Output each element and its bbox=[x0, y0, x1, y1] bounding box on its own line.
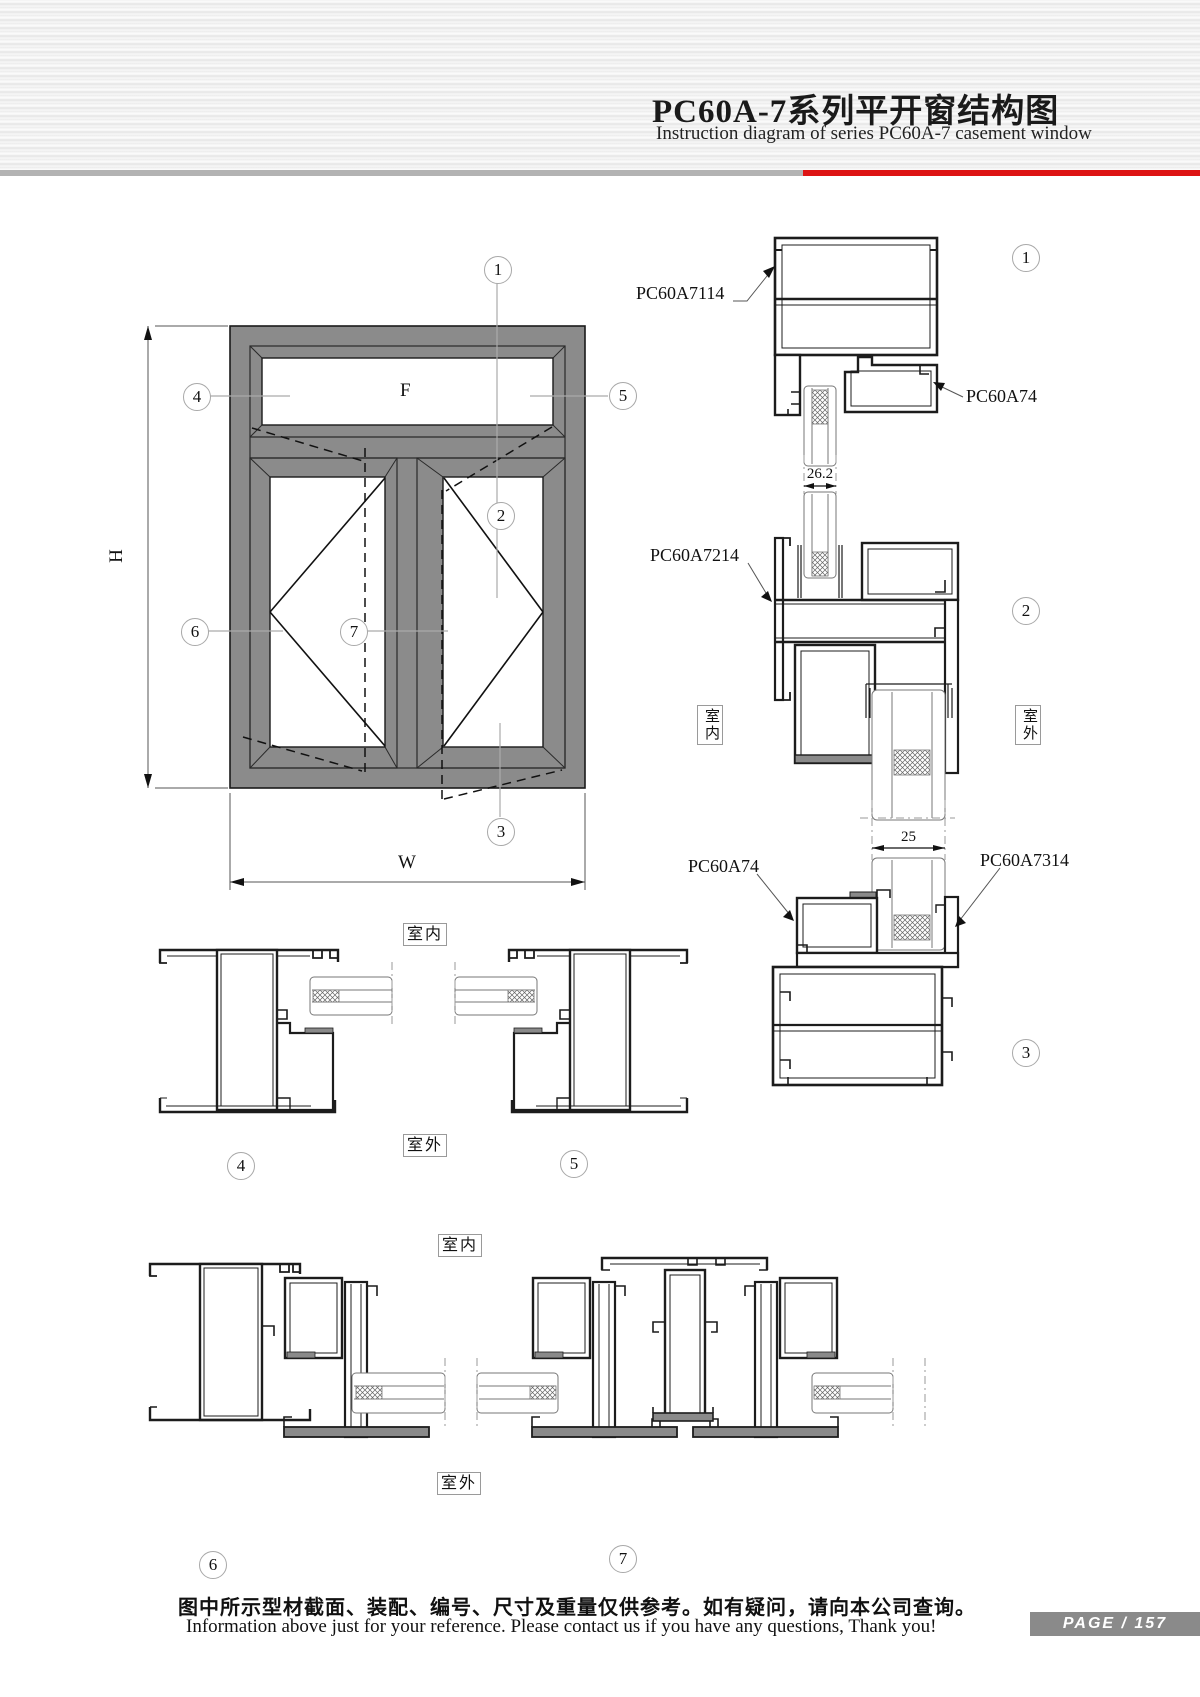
indoor-label-row2: 室内 bbox=[403, 923, 447, 946]
dim-26-2: 26.2 bbox=[804, 466, 836, 483]
elevation-width-label: W bbox=[398, 852, 416, 874]
label-pc60a7114: PC60A7114 bbox=[636, 283, 724, 304]
elevation-view bbox=[144, 283, 608, 890]
elevation-height-label: H bbox=[106, 549, 128, 563]
callout-7-section: 7 bbox=[609, 1545, 637, 1573]
section-7-mullion-left bbox=[445, 1278, 677, 1437]
page-number-badge: PAGE / 157 bbox=[1030, 1612, 1200, 1636]
callout-7-elevation: 7 bbox=[340, 618, 368, 646]
catalog-page: PC60A-7系列平开窗结构图 Instruction diagram of s… bbox=[0, 0, 1200, 1697]
section-6-jamb-sash bbox=[150, 1264, 445, 1437]
callout-6-section: 6 bbox=[199, 1551, 227, 1579]
outdoor-label-detail: 室外 bbox=[1015, 705, 1041, 745]
outdoor-label-row2: 室外 bbox=[403, 1134, 447, 1157]
section-7-mullion-center bbox=[602, 1258, 767, 1421]
callout-4-section: 4 bbox=[227, 1152, 255, 1180]
indoor-label-detail: 室内 bbox=[697, 705, 723, 745]
width-dimension bbox=[230, 793, 585, 890]
dim-25: 25 bbox=[872, 829, 945, 846]
callout-2-elevation: 2 bbox=[487, 502, 515, 530]
section-4-jamb bbox=[160, 950, 392, 1112]
label-pc60a74-top: PC60A74 bbox=[966, 386, 1037, 407]
callout-3-detail: 3 bbox=[1012, 1039, 1040, 1067]
callout-2-detail: 2 bbox=[1012, 597, 1040, 625]
label-pc60a7214: PC60A7214 bbox=[650, 545, 739, 566]
detail-2-transom-section bbox=[748, 492, 958, 860]
detail-3-sill-section bbox=[757, 858, 1000, 1085]
fixed-panel-label: F bbox=[400, 380, 411, 402]
outdoor-label-row3: 室外 bbox=[437, 1472, 481, 1495]
detail-1-head-section bbox=[733, 238, 963, 494]
indoor-label-row3: 室内 bbox=[438, 1234, 482, 1257]
callout-5-section: 5 bbox=[560, 1150, 588, 1178]
callout-5-elevation: 5 bbox=[609, 382, 637, 410]
callout-3-elevation: 3 bbox=[487, 818, 515, 846]
callout-4-elevation: 4 bbox=[183, 383, 211, 411]
callout-6-elevation: 6 bbox=[181, 618, 209, 646]
label-pc60a74-bottom: PC60A74 bbox=[688, 856, 759, 877]
footer-note-en: Information above just for your referenc… bbox=[186, 1616, 936, 1638]
callout-1-detail: 1 bbox=[1012, 244, 1040, 272]
callout-1-elevation: 1 bbox=[484, 256, 512, 284]
label-pc60a7314: PC60A7314 bbox=[980, 850, 1069, 871]
